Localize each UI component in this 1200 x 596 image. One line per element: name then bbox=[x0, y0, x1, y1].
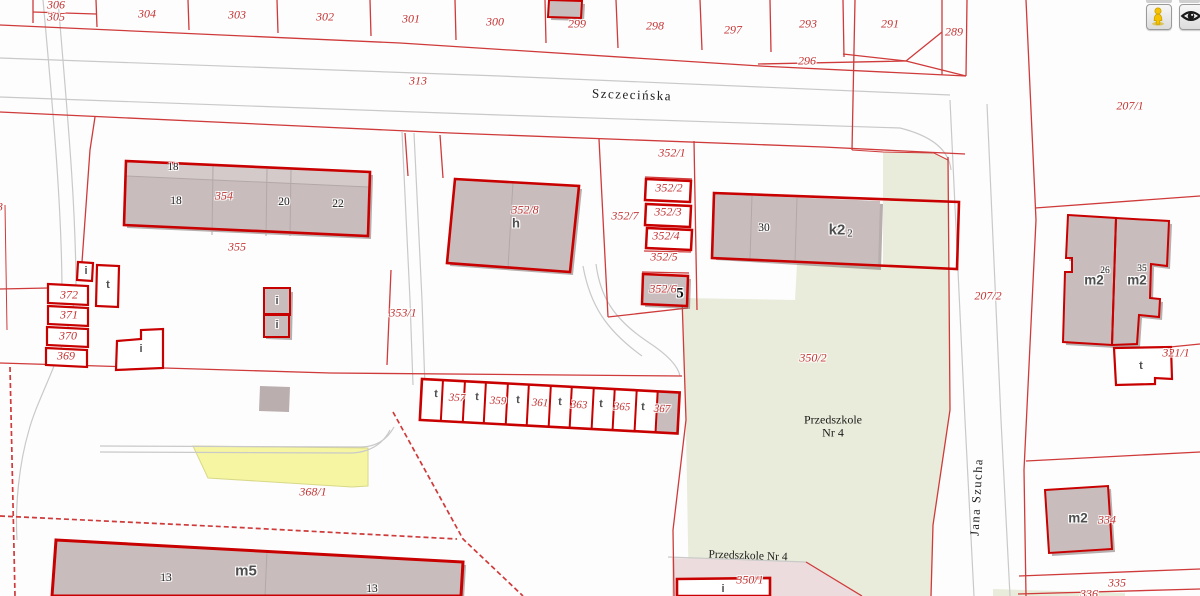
parcel-label-350-2: 350/2 bbox=[799, 351, 826, 366]
parcel-label-357: 357 bbox=[448, 392, 465, 405]
building-type-t-6: t bbox=[558, 396, 562, 408]
parcel-label-3-clipped: 3 bbox=[0, 200, 3, 215]
parcel-label-335: 335 bbox=[1108, 576, 1126, 591]
parcel-label-352-6: 352/6 bbox=[649, 282, 676, 297]
building-number-5: 5 bbox=[676, 286, 684, 303]
parcel-label-299: 299 bbox=[568, 17, 586, 32]
parcel-label-296: 296 bbox=[798, 54, 816, 69]
parcel-label-368-1: 368/1 bbox=[299, 485, 326, 500]
building-type-i-5: i bbox=[721, 583, 724, 595]
building-type-t-1: t bbox=[106, 279, 110, 291]
parcel-label-367: 367 bbox=[653, 403, 670, 416]
building-type-t-2: t bbox=[1139, 360, 1143, 372]
building-number-18-upper: 18 bbox=[168, 161, 179, 173]
toolbar-clipped-button bbox=[1146, 0, 1172, 3]
parcel-label-304: 304 bbox=[138, 7, 156, 22]
parcel-label-291: 291 bbox=[881, 17, 899, 32]
parcel-label-354: 354 bbox=[215, 189, 233, 204]
parcel-label-372: 372 bbox=[60, 288, 78, 303]
building-number-2: 2 bbox=[848, 229, 853, 240]
parcel-label-371: 371 bbox=[60, 308, 78, 323]
parcel-label-207-2: 207/2 bbox=[974, 289, 1001, 304]
parcel-label-353-1: 353/1 bbox=[389, 306, 416, 321]
building-type-m5: m5 bbox=[235, 563, 257, 580]
street-view-button[interactable] bbox=[1146, 4, 1172, 30]
street-label-szczecinska: Szczecińska bbox=[592, 86, 673, 105]
parcel-label-301: 301 bbox=[402, 12, 420, 27]
parcel-label-303: 303 bbox=[228, 8, 246, 23]
building-type-t-8: t bbox=[641, 401, 645, 413]
building-type-i-3: i bbox=[275, 319, 278, 331]
building-type-i-4: i bbox=[139, 343, 142, 355]
building-type-h: h bbox=[512, 216, 520, 231]
pegman-icon bbox=[1147, 5, 1169, 27]
parcel-label-370: 370 bbox=[59, 329, 77, 344]
parcel-label-305: 305 bbox=[47, 10, 65, 25]
building-top-small bbox=[548, 0, 582, 18]
parcel-label-352-5: 352/5 bbox=[650, 250, 677, 265]
toolbar-clipped-button bbox=[1179, 0, 1200, 3]
building-type-k2: k2 bbox=[829, 222, 846, 239]
parcel-label-293: 293 bbox=[799, 17, 817, 32]
parcel-label-300: 300 bbox=[486, 15, 504, 30]
building-number-13a: 13 bbox=[160, 572, 172, 584]
parcel-label-359: 359 bbox=[489, 395, 506, 408]
building-type-m2-1: m2 bbox=[1084, 273, 1104, 288]
building-shed-gray bbox=[259, 386, 290, 412]
building-number-18: 18 bbox=[170, 195, 182, 207]
building-type-t-5: t bbox=[516, 394, 520, 406]
place-label-przedszkole-line2: Nr 4 bbox=[822, 426, 844, 441]
building-m5 bbox=[52, 540, 463, 596]
parcel-label-352-4: 352/4 bbox=[652, 229, 679, 244]
building-type-i-1: i bbox=[84, 265, 87, 277]
parcel-label-289: 289 bbox=[945, 25, 963, 40]
parcel-label-361: 361 bbox=[531, 397, 548, 410]
parcel-label-352-1: 352/1 bbox=[658, 146, 685, 161]
parcel-label-298: 298 bbox=[646, 19, 664, 34]
parcel-label-363: 363 bbox=[570, 399, 587, 412]
parcel-label-321-1: 321/1 bbox=[1162, 346, 1189, 361]
building-type-i-2: i bbox=[275, 295, 278, 307]
building-number-13b: 13 bbox=[366, 583, 378, 595]
parcel-label-302: 302 bbox=[316, 10, 334, 25]
parcel-label-352-3: 352/3 bbox=[654, 205, 681, 220]
building-number-22: 22 bbox=[332, 198, 344, 210]
visibility-button[interactable] bbox=[1179, 4, 1200, 30]
building-type-t-3: t bbox=[434, 388, 438, 400]
building-number-20: 20 bbox=[278, 196, 290, 208]
parcel-label-355: 355 bbox=[228, 240, 246, 255]
building-type-m2-2: m2 bbox=[1127, 273, 1147, 288]
parcel-label-313: 313 bbox=[409, 74, 427, 89]
building-type-t-7: t bbox=[599, 398, 603, 410]
map-canvas[interactable]: 3063053043033023013002992982972932912892… bbox=[0, 0, 1200, 596]
parcel-label-369: 369 bbox=[57, 349, 75, 364]
parcel-label-352-2: 352/2 bbox=[655, 181, 682, 196]
parcel-label-352-7: 352/7 bbox=[611, 209, 638, 224]
parcel-label-336: 336 bbox=[1080, 587, 1098, 596]
parcel-label-334: 334 bbox=[1098, 513, 1116, 528]
building-number-30: 30 bbox=[758, 222, 770, 234]
building-type-t-4: t bbox=[475, 391, 479, 403]
parcel-label-350-1: 350/1 bbox=[736, 573, 763, 588]
parcel-label-207-1: 207/1 bbox=[1116, 99, 1143, 114]
parcel-label-297: 297 bbox=[724, 23, 742, 38]
parcel-label-365: 365 bbox=[613, 401, 630, 414]
eye-icon bbox=[1180, 5, 1200, 27]
building-type-m2-3: m2 bbox=[1068, 511, 1088, 526]
